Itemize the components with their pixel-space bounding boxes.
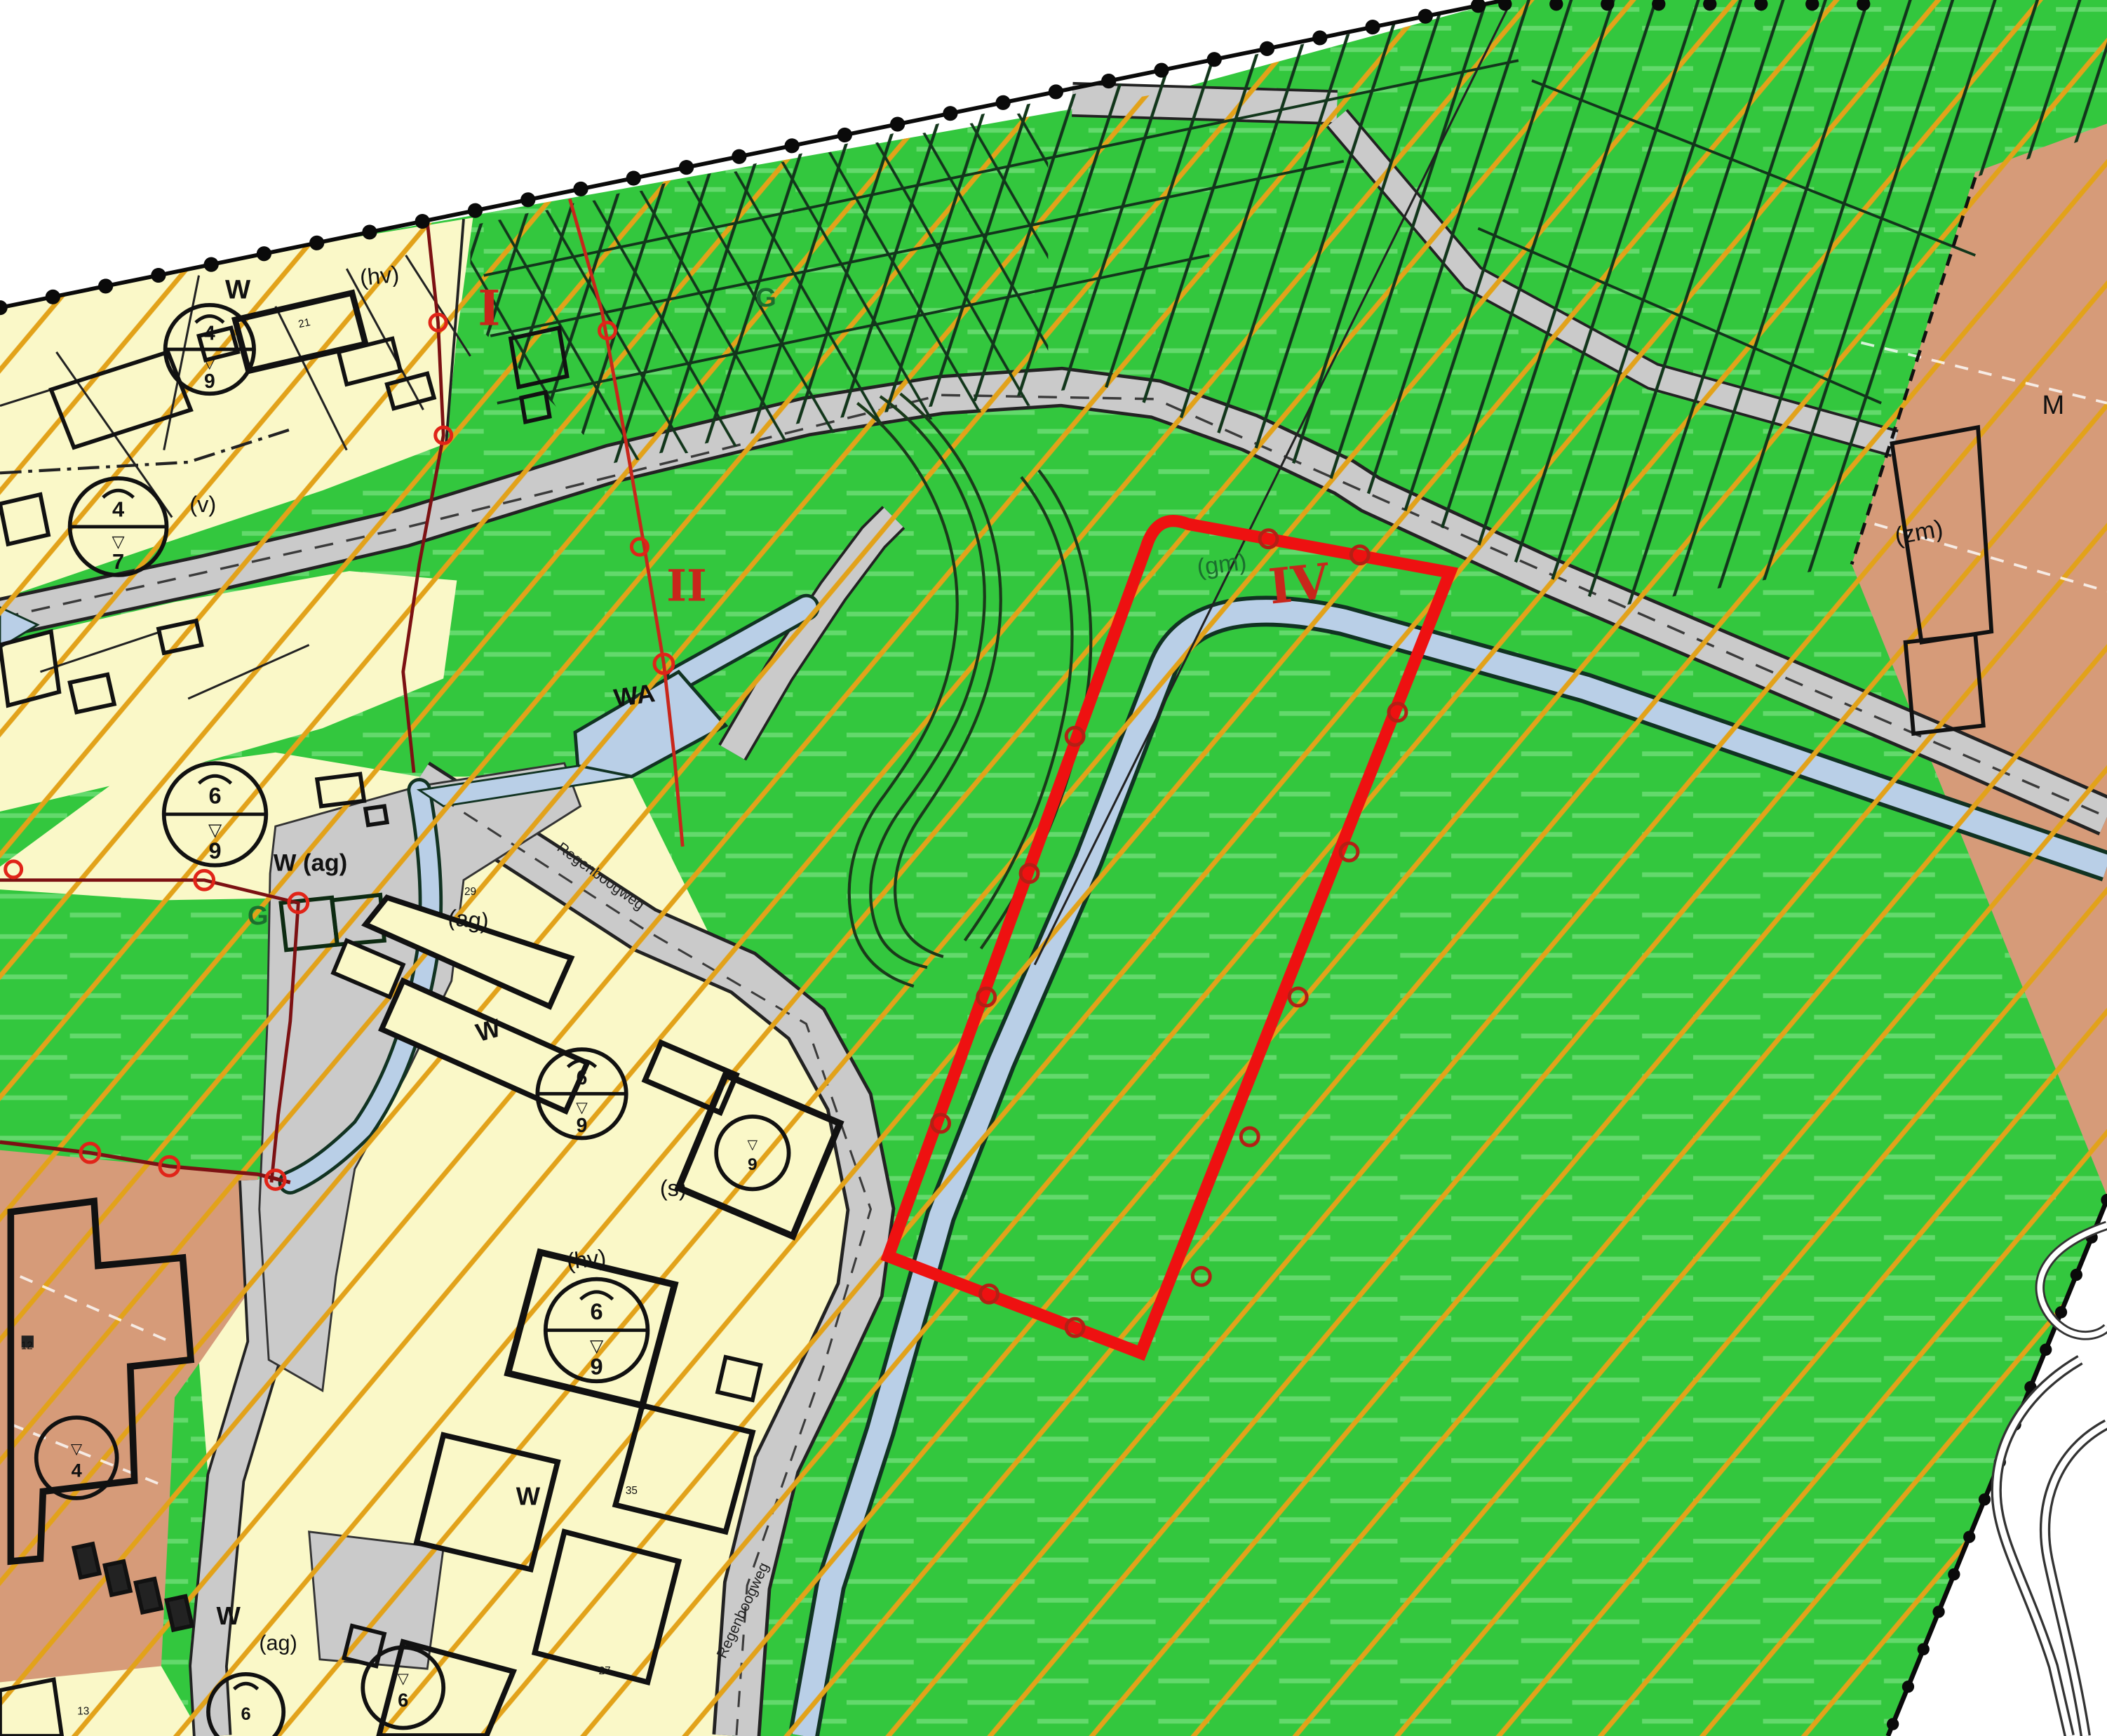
- housenum-13: 13: [77, 1705, 89, 1717]
- svg-text:▽: ▽: [112, 532, 126, 551]
- svg-text:9: 9: [577, 1114, 588, 1136]
- svg-text:6: 6: [591, 1299, 603, 1324]
- housenum-21: 21: [297, 316, 311, 330]
- zoning-map-canvas: 4▽94▽76▽96▽9▽96▽9▽46▽6 W(hv)(v)GWA(gm)M(…: [0, 0, 2107, 1736]
- svg-text:6: 6: [398, 1689, 408, 1711]
- label-wa: WA: [612, 678, 657, 713]
- label-w-ag-mid: W (ag): [274, 849, 347, 876]
- svg-text:▽: ▽: [576, 1098, 588, 1116]
- svg-text:9: 9: [591, 1354, 603, 1380]
- label-w-low: W: [516, 1482, 541, 1511]
- svg-text:6: 6: [208, 783, 221, 809]
- svg-text:4: 4: [112, 497, 124, 521]
- label-ag-sw: (ag): [259, 1631, 297, 1655]
- label-g-top: G: [755, 283, 776, 313]
- svg-text:9: 9: [208, 838, 221, 863]
- label-v: (v): [189, 492, 216, 517]
- svg-text:6: 6: [241, 1704, 251, 1724]
- label-w-nw: W: [225, 274, 251, 304]
- label-hv-mid: (hv): [565, 1245, 607, 1274]
- label-hv-nw: (hv): [358, 261, 400, 290]
- housenum-12: 12: [21, 1340, 33, 1352]
- svg-text:▽: ▽: [590, 1336, 604, 1356]
- label-g-mid: G: [248, 901, 269, 931]
- svg-text:▽: ▽: [208, 821, 222, 840]
- svg-text:▽: ▽: [204, 354, 216, 372]
- marker-ii: II: [666, 560, 706, 611]
- housenum-27: 27: [599, 1665, 611, 1677]
- svg-text:9: 9: [204, 370, 215, 392]
- label-w-sw: W: [217, 1601, 241, 1630]
- label-m: M: [2042, 390, 2064, 420]
- svg-text:4: 4: [72, 1460, 82, 1481]
- label-s: (s): [660, 1176, 687, 1201]
- svg-text:▽: ▽: [398, 1671, 410, 1687]
- svg-text:7: 7: [112, 549, 124, 574]
- housenum-29: 29: [464, 886, 476, 898]
- svg-text:6: 6: [577, 1066, 588, 1089]
- svg-text:▽: ▽: [71, 1441, 83, 1457]
- label-ag: (ag): [447, 905, 490, 934]
- marker-i: I: [478, 281, 500, 337]
- svg-text:4: 4: [204, 322, 215, 344]
- zoning-map: 4▽94▽76▽96▽9▽96▽9▽46▽6 W(hv)(v)GWA(gm)M(…: [0, 0, 2107, 1736]
- svg-text:▽: ▽: [748, 1138, 758, 1152]
- svg-text:9: 9: [748, 1155, 758, 1174]
- marker-iv: IV: [1266, 553, 1333, 616]
- housenum-35: 35: [626, 1485, 638, 1497]
